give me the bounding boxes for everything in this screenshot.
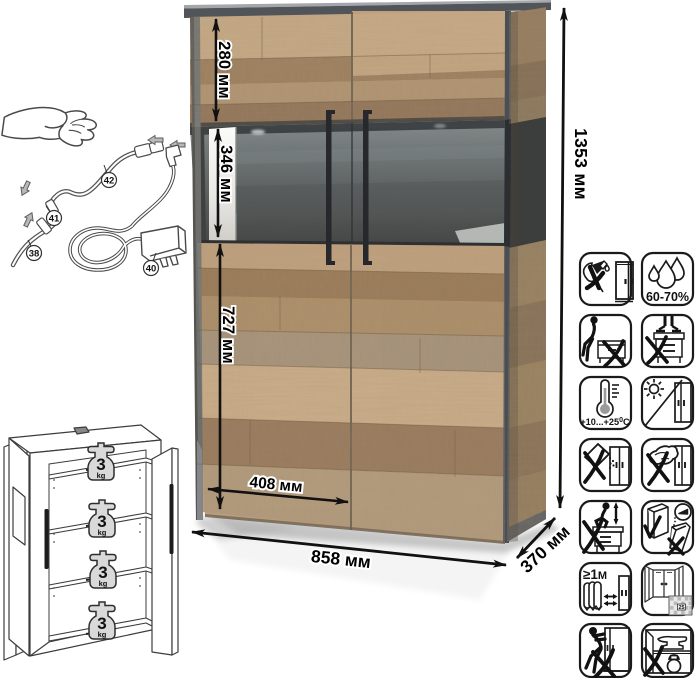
svg-text:kg: kg (98, 528, 107, 537)
svg-text:≥1M: ≥1M (583, 567, 607, 582)
svg-text:25: 25 (678, 605, 684, 611)
svg-text:40: 40 (146, 264, 157, 275)
svg-text:38: 38 (29, 249, 40, 260)
svg-text:1353 мм: 1353 мм (571, 128, 591, 200)
svg-text:42: 42 (104, 176, 115, 187)
svg-text:60-70%: 60-70% (646, 290, 689, 304)
svg-text:kg: kg (99, 579, 108, 588)
svg-text:41: 41 (49, 214, 60, 225)
svg-text:kg: kg (98, 630, 107, 639)
svg-text:346 мм: 346 мм (217, 145, 235, 203)
svg-text:280 мм: 280 мм (215, 41, 233, 99)
svg-text:727 мм: 727 мм (219, 306, 237, 364)
svg-text:+10...+250C: +10...+250C (580, 417, 630, 427)
svg-text:kg: kg (97, 471, 106, 480)
